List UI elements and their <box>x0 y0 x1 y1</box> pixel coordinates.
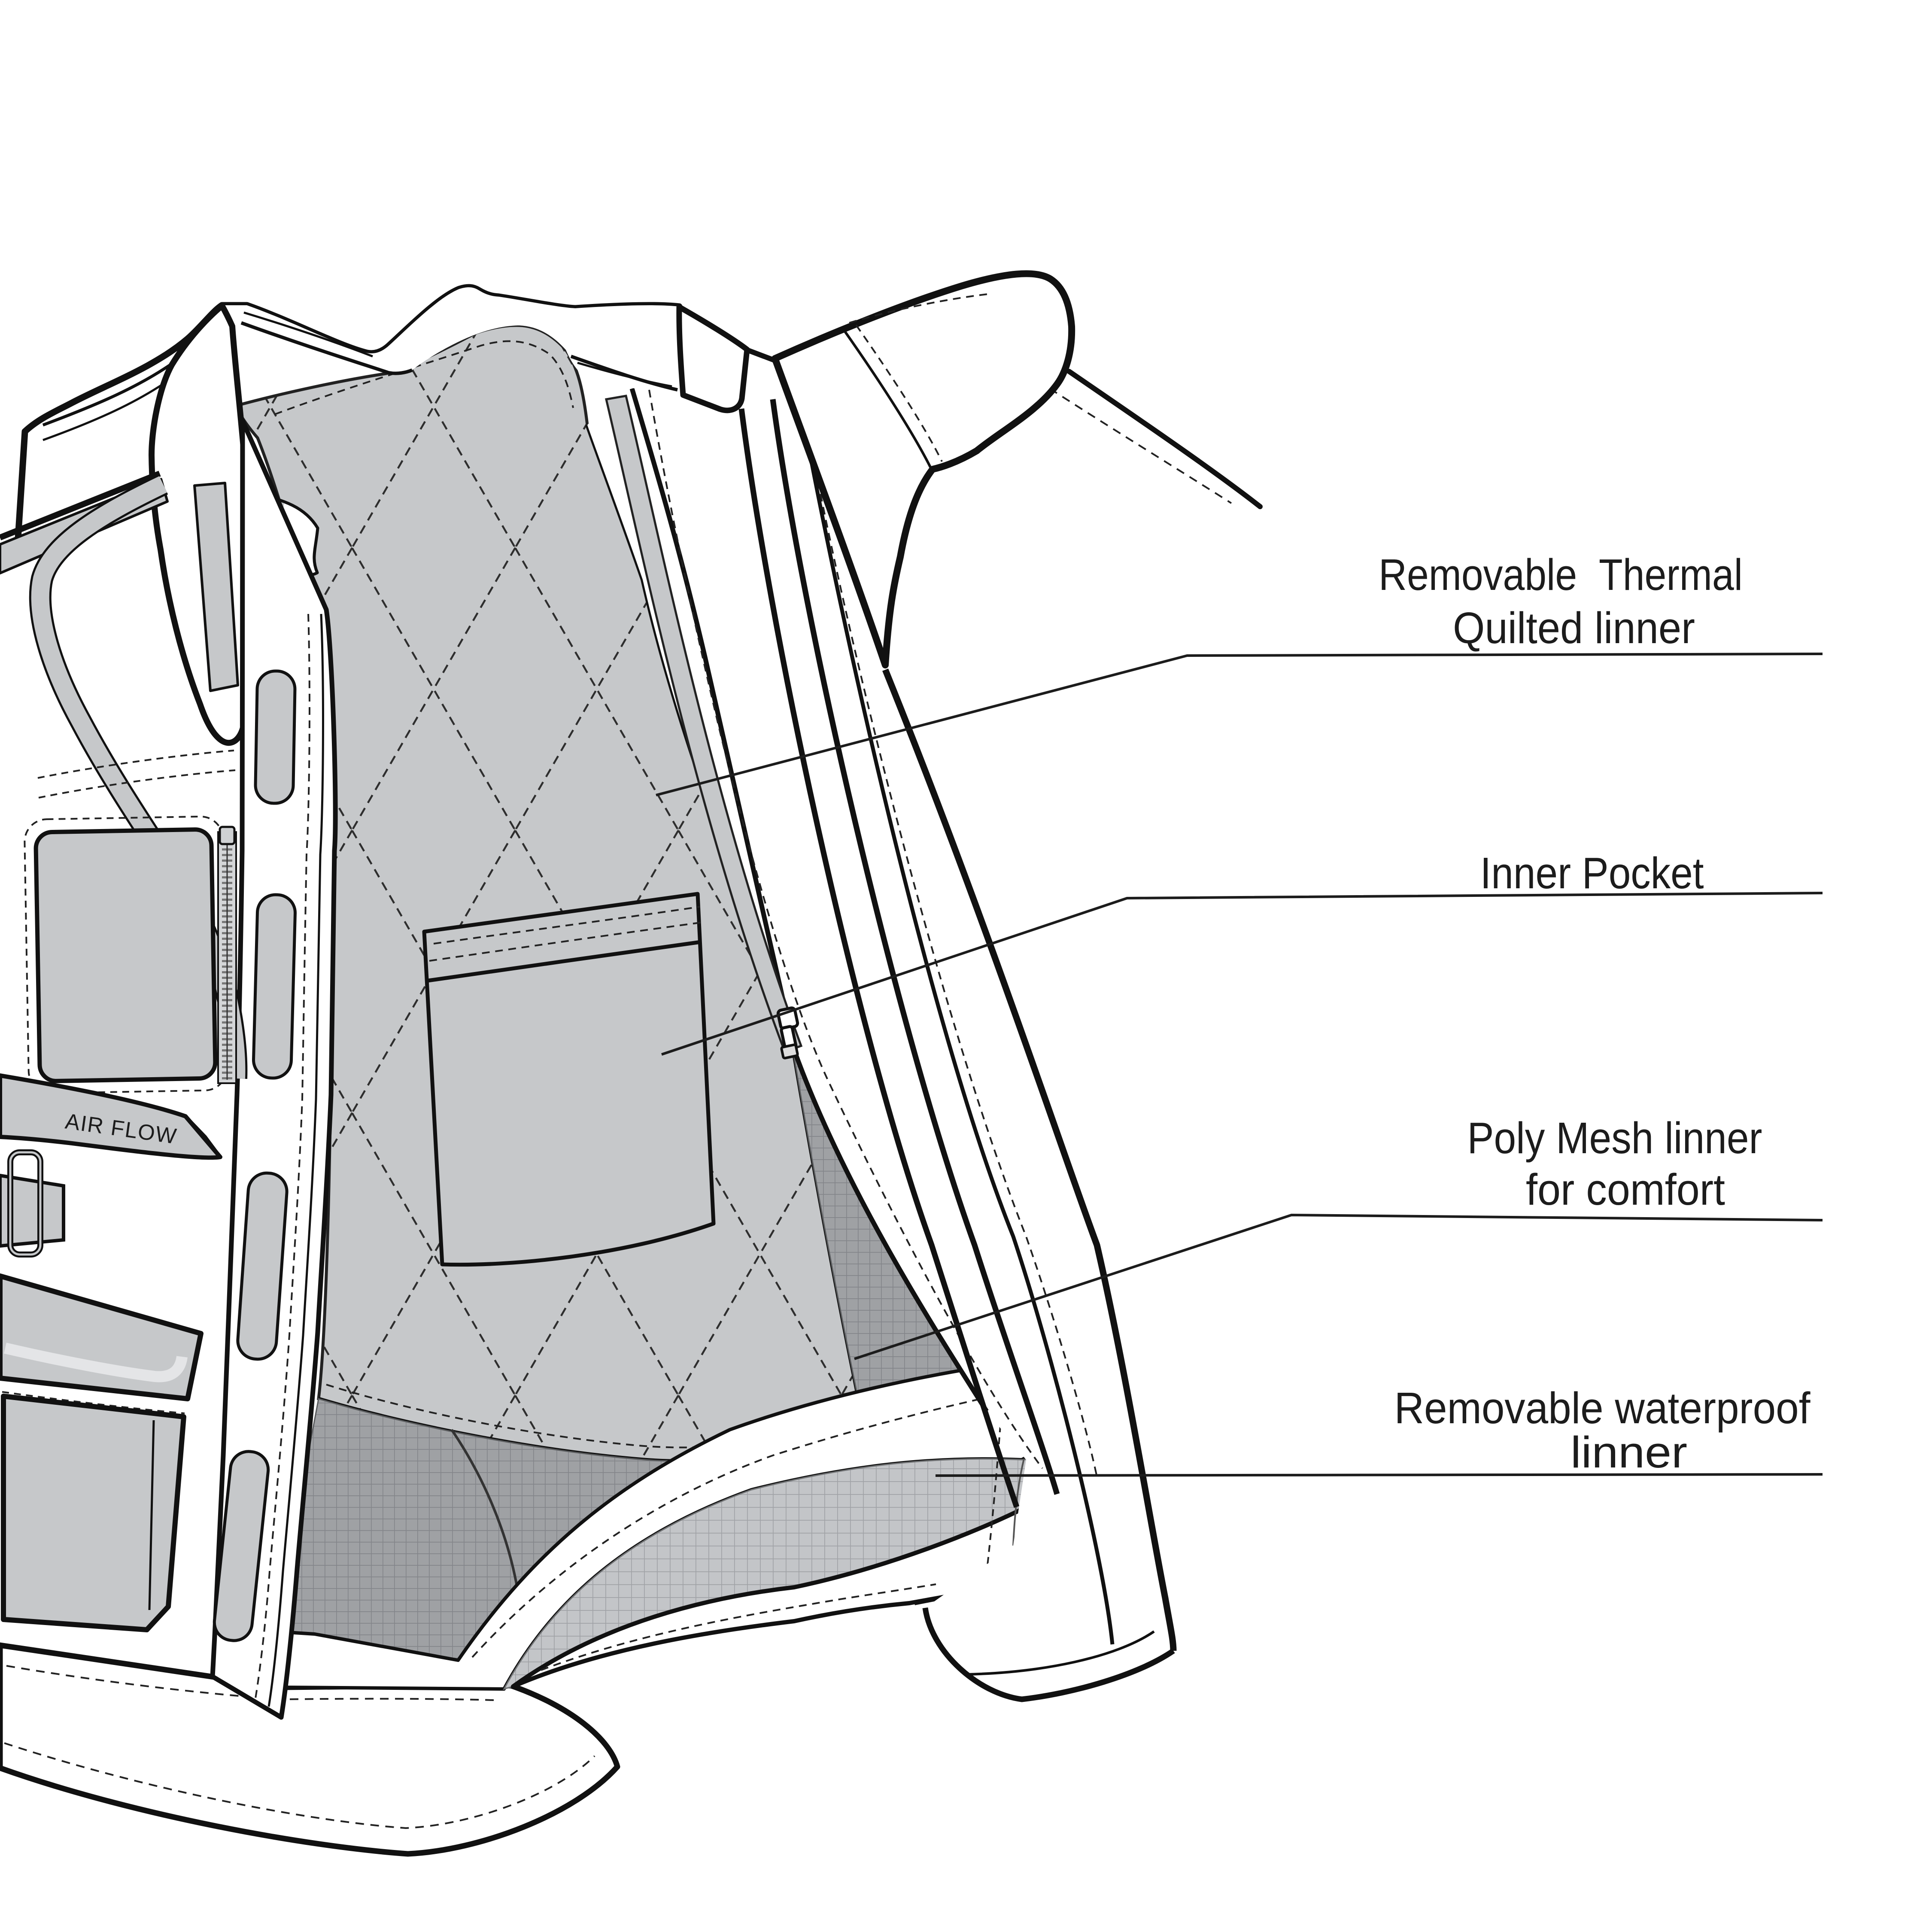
svg-text:for comfort: for comfort <box>1526 1165 1725 1214</box>
svg-text:Poly Mesh linner: Poly Mesh linner <box>1467 1113 1762 1163</box>
svg-text:Quilted linner: Quilted linner <box>1453 603 1695 653</box>
svg-text:Removable waterproof: Removable waterproof <box>1394 1383 1810 1433</box>
svg-text:Inner Pocket: Inner Pocket <box>1480 848 1704 898</box>
svg-text:Removable Thermal: Removable Thermal <box>1379 550 1743 599</box>
svg-text:linner: linner <box>1571 1428 1687 1477</box>
